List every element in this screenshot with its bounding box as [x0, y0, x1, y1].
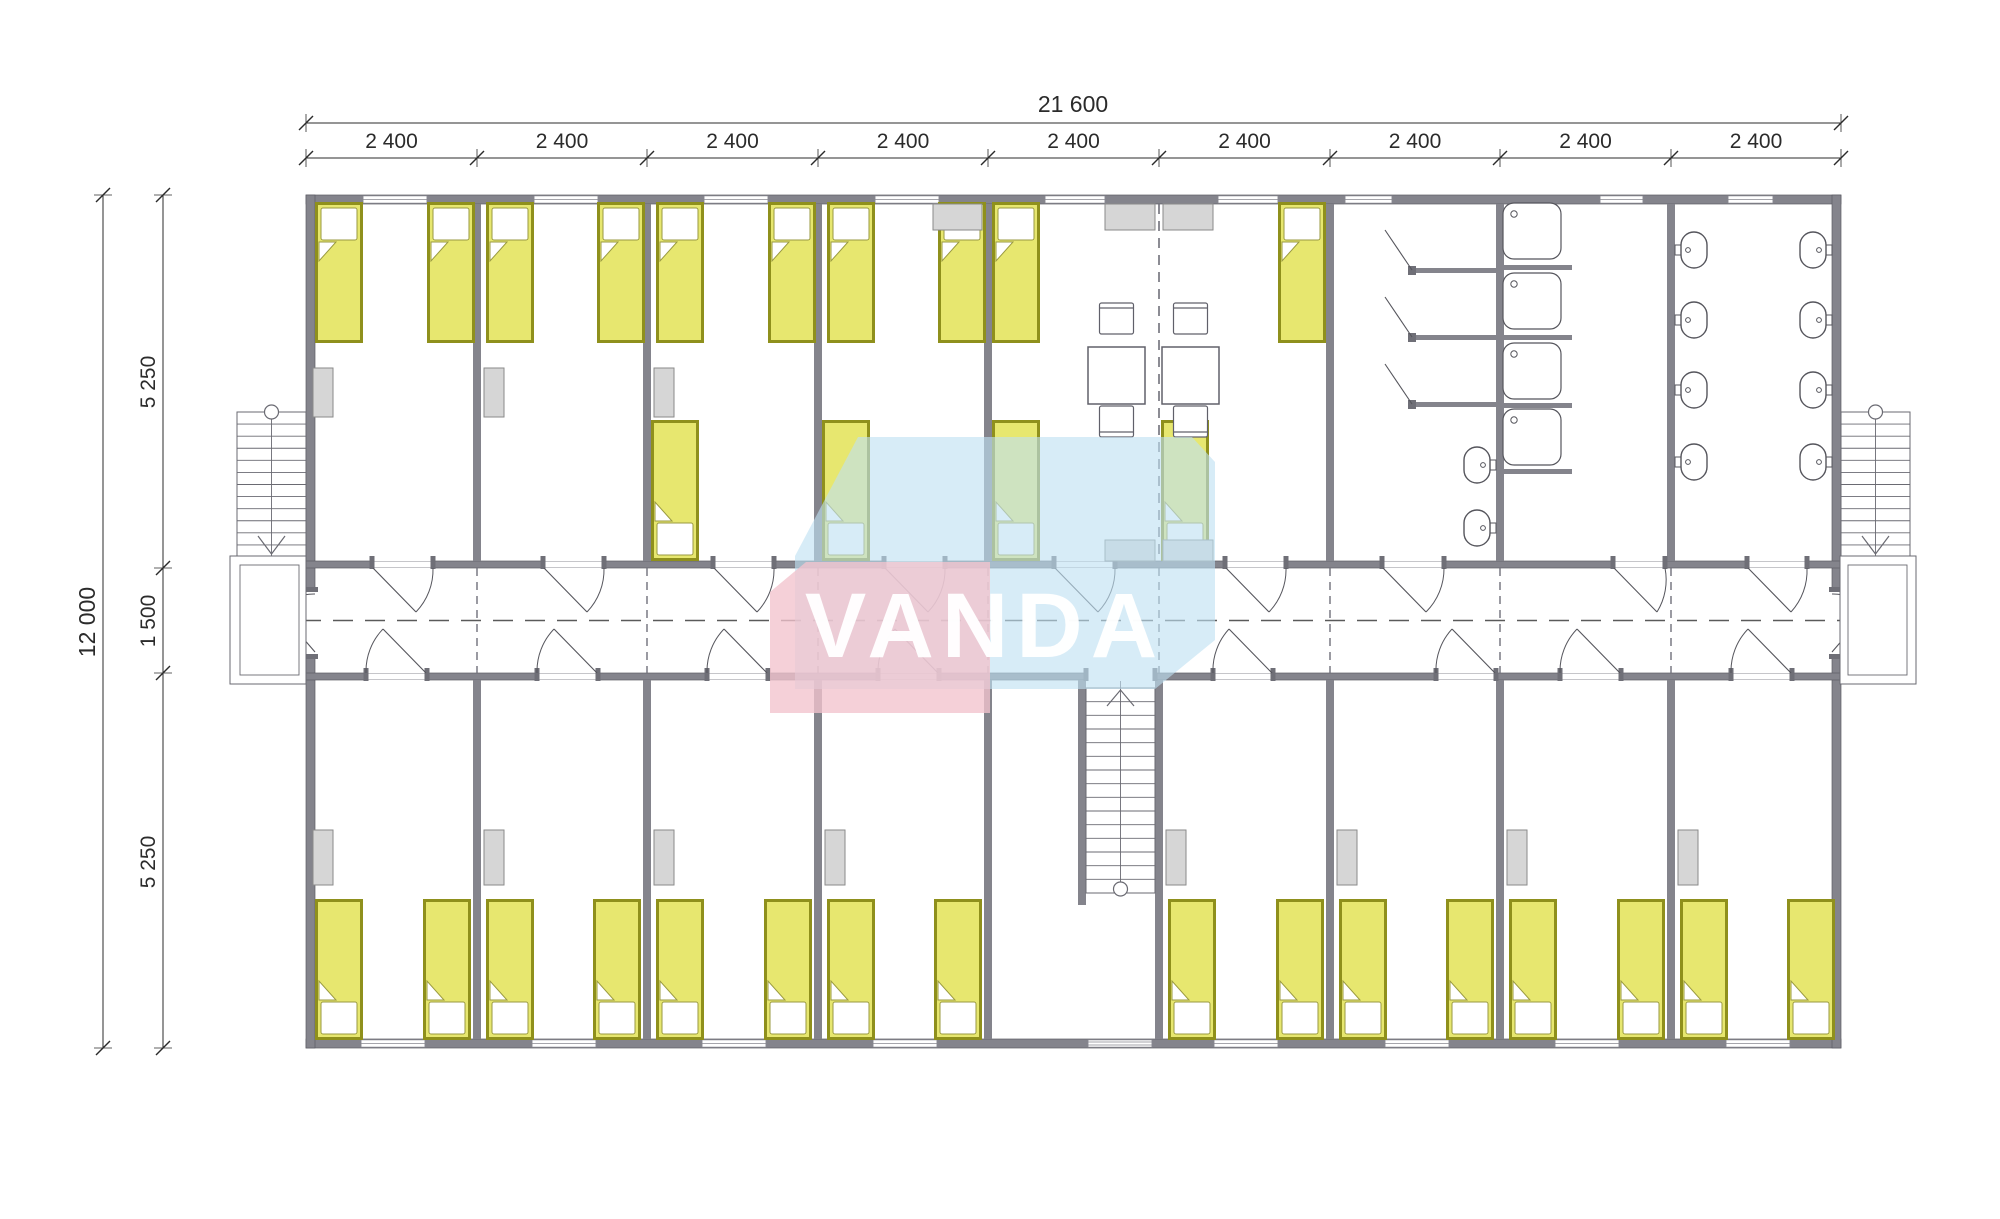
stair-enclosure-wall [1078, 680, 1086, 905]
dimension-label-module: 2 400 [365, 130, 418, 153]
door-jamb [1790, 668, 1795, 681]
wc-fixture [1800, 232, 1832, 268]
bed-pillow [770, 1002, 806, 1034]
partition-wall [984, 680, 992, 1039]
shower-area [1385, 203, 1832, 546]
dimension-label-segment: 5 250 [137, 836, 160, 889]
bed-pillow [429, 1002, 465, 1034]
door-leaf [1229, 629, 1272, 673]
stair-start-circle [1114, 882, 1128, 896]
dimension-label-segment: 1 500 [137, 595, 160, 648]
wardrobe [313, 368, 333, 417]
door-leaf [1226, 568, 1269, 612]
stair-start-circle [265, 405, 279, 419]
wc-bowl [1464, 447, 1490, 483]
bed-pillow [599, 1002, 635, 1034]
wc-fixture [1464, 447, 1496, 483]
chair [1174, 303, 1208, 334]
wc-bowl [1681, 372, 1707, 408]
wardrobe [1166, 830, 1186, 885]
dimension-label-module: 2 400 [536, 130, 589, 153]
door-jamb [1805, 556, 1810, 569]
door-jamb [1611, 556, 1616, 569]
door-jamb [1380, 556, 1385, 569]
chair [1100, 406, 1134, 437]
dimension-label-module: 2 400 [706, 130, 759, 153]
dimension-label-module: 2 400 [1047, 130, 1100, 153]
wardrobe [484, 830, 504, 885]
wc-fixture [1675, 372, 1707, 408]
dimension-label-module: 2 400 [877, 130, 930, 153]
bed-pillow [657, 523, 693, 555]
bed-pillow [1282, 1002, 1318, 1034]
shower-tray-divider [1500, 335, 1572, 340]
bed-pillow [1174, 1002, 1210, 1034]
door-jamb [1663, 556, 1668, 569]
wc-bowl [1681, 232, 1707, 268]
door-jamb [431, 556, 436, 569]
bed [658, 901, 703, 1039]
door-leaf [1577, 629, 1620, 673]
bed-pillow [833, 208, 869, 240]
partition-wall [1667, 680, 1675, 1039]
bed-pillow [433, 208, 469, 240]
wc-fixture [1800, 444, 1832, 480]
bed-pillow [1686, 1002, 1722, 1034]
partition-wall [643, 680, 651, 1039]
landing-left [230, 556, 306, 684]
dimension-label-height: 12 000 [74, 587, 100, 657]
bed-pillow [998, 208, 1034, 240]
wc-bowl [1681, 302, 1707, 338]
bed-pillow [833, 1002, 869, 1034]
partition-wall [1496, 680, 1504, 1039]
floor-plan: 21 6002 4002 4002 4002 4002 4002 4002 40… [0, 0, 2000, 1219]
bed [936, 901, 981, 1039]
bed [658, 204, 703, 342]
door-swing-arc [707, 629, 724, 673]
door-swing-arc [587, 568, 604, 612]
door-leaf [544, 568, 587, 612]
wardrobe [654, 368, 674, 417]
dimension-label-total: 21 600 [1038, 91, 1108, 117]
door-leaf [1383, 568, 1426, 612]
watermark-text: VANDA [805, 575, 1165, 677]
door-jamb [1494, 668, 1499, 681]
dimension-label-module: 2 400 [1218, 130, 1271, 153]
wc-fixture [1464, 510, 1496, 546]
wc-fixture [1675, 232, 1707, 268]
bed [1278, 901, 1323, 1039]
partition-wall [1326, 680, 1334, 1039]
bed [595, 901, 640, 1039]
stair-start-circle [1869, 405, 1883, 419]
door-jamb [1442, 556, 1447, 569]
bed [1511, 901, 1556, 1039]
bed-pillow [1793, 1002, 1829, 1034]
door-swing-arc [1731, 629, 1748, 673]
entrance-door [1088, 1040, 1152, 1047]
wardrobe [825, 830, 845, 885]
door-jamb [1271, 668, 1276, 681]
door-swing-arc [416, 568, 433, 612]
door-jamb [711, 556, 716, 569]
partition-wall [1155, 680, 1163, 1039]
bed [1619, 901, 1664, 1039]
partition-wall [473, 680, 481, 1039]
bed [1341, 901, 1386, 1039]
door-swing-arc [1426, 568, 1444, 612]
partition-wall [814, 680, 822, 1039]
bed-pillow [940, 1002, 976, 1034]
bed [994, 204, 1039, 342]
kitchen-counter [1105, 204, 1155, 230]
dining-table [1088, 347, 1145, 404]
partition-wall [1326, 204, 1334, 561]
bed [770, 204, 815, 342]
stall-door-leaf [1385, 364, 1412, 404]
door-jamb [772, 556, 777, 569]
entrance-stair [1086, 681, 1155, 896]
shower-tray-divider [1500, 265, 1572, 270]
bed [1789, 901, 1834, 1039]
door-leaf [383, 629, 426, 673]
bed-pillow [492, 208, 528, 240]
wc-bowl [1800, 444, 1826, 480]
door-jamb [541, 556, 546, 569]
door-jamb [425, 668, 430, 681]
kitchen-counter [1163, 204, 1213, 230]
bed-pillow [492, 1002, 528, 1034]
wc-bowl [1464, 510, 1490, 546]
watermark: VANDA [770, 437, 1215, 713]
door-swing-arc [1791, 568, 1807, 612]
door-jamb [766, 668, 771, 681]
door-swing-arc [1269, 568, 1286, 612]
stall-jamb [1408, 266, 1416, 275]
door-leaf [1748, 629, 1791, 673]
bed [766, 901, 811, 1039]
wardrobe [654, 830, 674, 885]
door-leaf [373, 568, 416, 612]
wardrobe [313, 830, 333, 885]
wc-fixture [1675, 444, 1707, 480]
bed [317, 204, 362, 342]
wc-bowl [1800, 302, 1826, 338]
shower-stall-divider [1412, 335, 1496, 340]
door-leaf [1452, 629, 1495, 673]
shower-stall-divider [1412, 268, 1496, 273]
landing-right [1840, 556, 1916, 684]
wc-fixture [1800, 372, 1832, 408]
door-swing-arc [366, 629, 383, 673]
bed [1448, 901, 1493, 1039]
door-jamb [1223, 556, 1228, 569]
chair [1174, 406, 1208, 437]
wc-fixture [1800, 302, 1832, 338]
wardrobe [1678, 830, 1698, 885]
bed [425, 901, 470, 1039]
door-swing-arc [537, 629, 554, 673]
floor-plan-canvas: 21 6002 4002 4002 4002 4002 4002 4002 40… [0, 0, 2000, 1219]
bed [488, 204, 533, 342]
bed [429, 204, 474, 342]
door-swing-arc [1436, 629, 1452, 673]
dimension-label-module: 2 400 [1559, 130, 1612, 153]
bed [1170, 901, 1215, 1039]
exterior-stair-right [1841, 405, 1910, 557]
bed-pillow [1284, 208, 1320, 240]
door-leaf [1748, 568, 1791, 612]
chair [1100, 303, 1134, 334]
door-leaf [714, 568, 757, 612]
wardrobe [1337, 830, 1357, 885]
wc-bowl [1800, 372, 1826, 408]
door-jamb [370, 556, 375, 569]
bed-pillow [774, 208, 810, 240]
dining-table [1162, 347, 1219, 404]
exterior-door-opening [305, 592, 316, 654]
bed [653, 422, 698, 560]
door-leaf [1614, 568, 1657, 612]
bed-pillow [662, 1002, 698, 1034]
door-leaf [554, 629, 597, 673]
door-jamb [1284, 556, 1289, 569]
shower-tray-divider [1500, 403, 1572, 408]
wc-bowl [1681, 444, 1707, 480]
door-jamb [602, 556, 607, 569]
stall-jamb [1408, 400, 1416, 409]
door-swing-arc [1657, 568, 1666, 612]
bed-pillow [1345, 1002, 1381, 1034]
door-swing-arc [1560, 629, 1577, 673]
stall-jamb [1408, 333, 1416, 342]
bed [1280, 204, 1325, 342]
partition-wall [1667, 204, 1675, 561]
wc-fixture [1675, 302, 1707, 338]
bed-pillow [603, 208, 639, 240]
shower-stall-divider [1412, 402, 1496, 407]
door-jamb [1619, 668, 1624, 681]
wardrobe [933, 204, 982, 230]
dimension-label-module: 2 400 [1730, 130, 1783, 153]
stall-door-leaf [1385, 297, 1412, 337]
dimension-label-module: 2 400 [1389, 130, 1442, 153]
bed [1682, 901, 1727, 1039]
bed [317, 901, 362, 1039]
dimension-label-segment: 5 250 [137, 356, 160, 409]
stall-door-leaf [1385, 230, 1412, 270]
bed [829, 901, 874, 1039]
wc-bowl [1800, 232, 1826, 268]
bed-pillow [321, 208, 357, 240]
wardrobe [484, 368, 504, 417]
wardrobe [1507, 830, 1527, 885]
bed-pillow [662, 208, 698, 240]
door-jamb [1745, 556, 1750, 569]
bed-pillow [321, 1002, 357, 1034]
bed-pillow [1623, 1002, 1659, 1034]
shower-tray-divider [1500, 469, 1572, 474]
door-leaf [724, 629, 767, 673]
bed [488, 901, 533, 1039]
exterior-stair-left [237, 405, 306, 557]
bed [599, 204, 644, 342]
bed-pillow [1515, 1002, 1551, 1034]
door-swing-arc [1213, 629, 1229, 673]
door-jamb [596, 668, 601, 681]
bed-pillow [1452, 1002, 1488, 1034]
bed [829, 204, 874, 342]
